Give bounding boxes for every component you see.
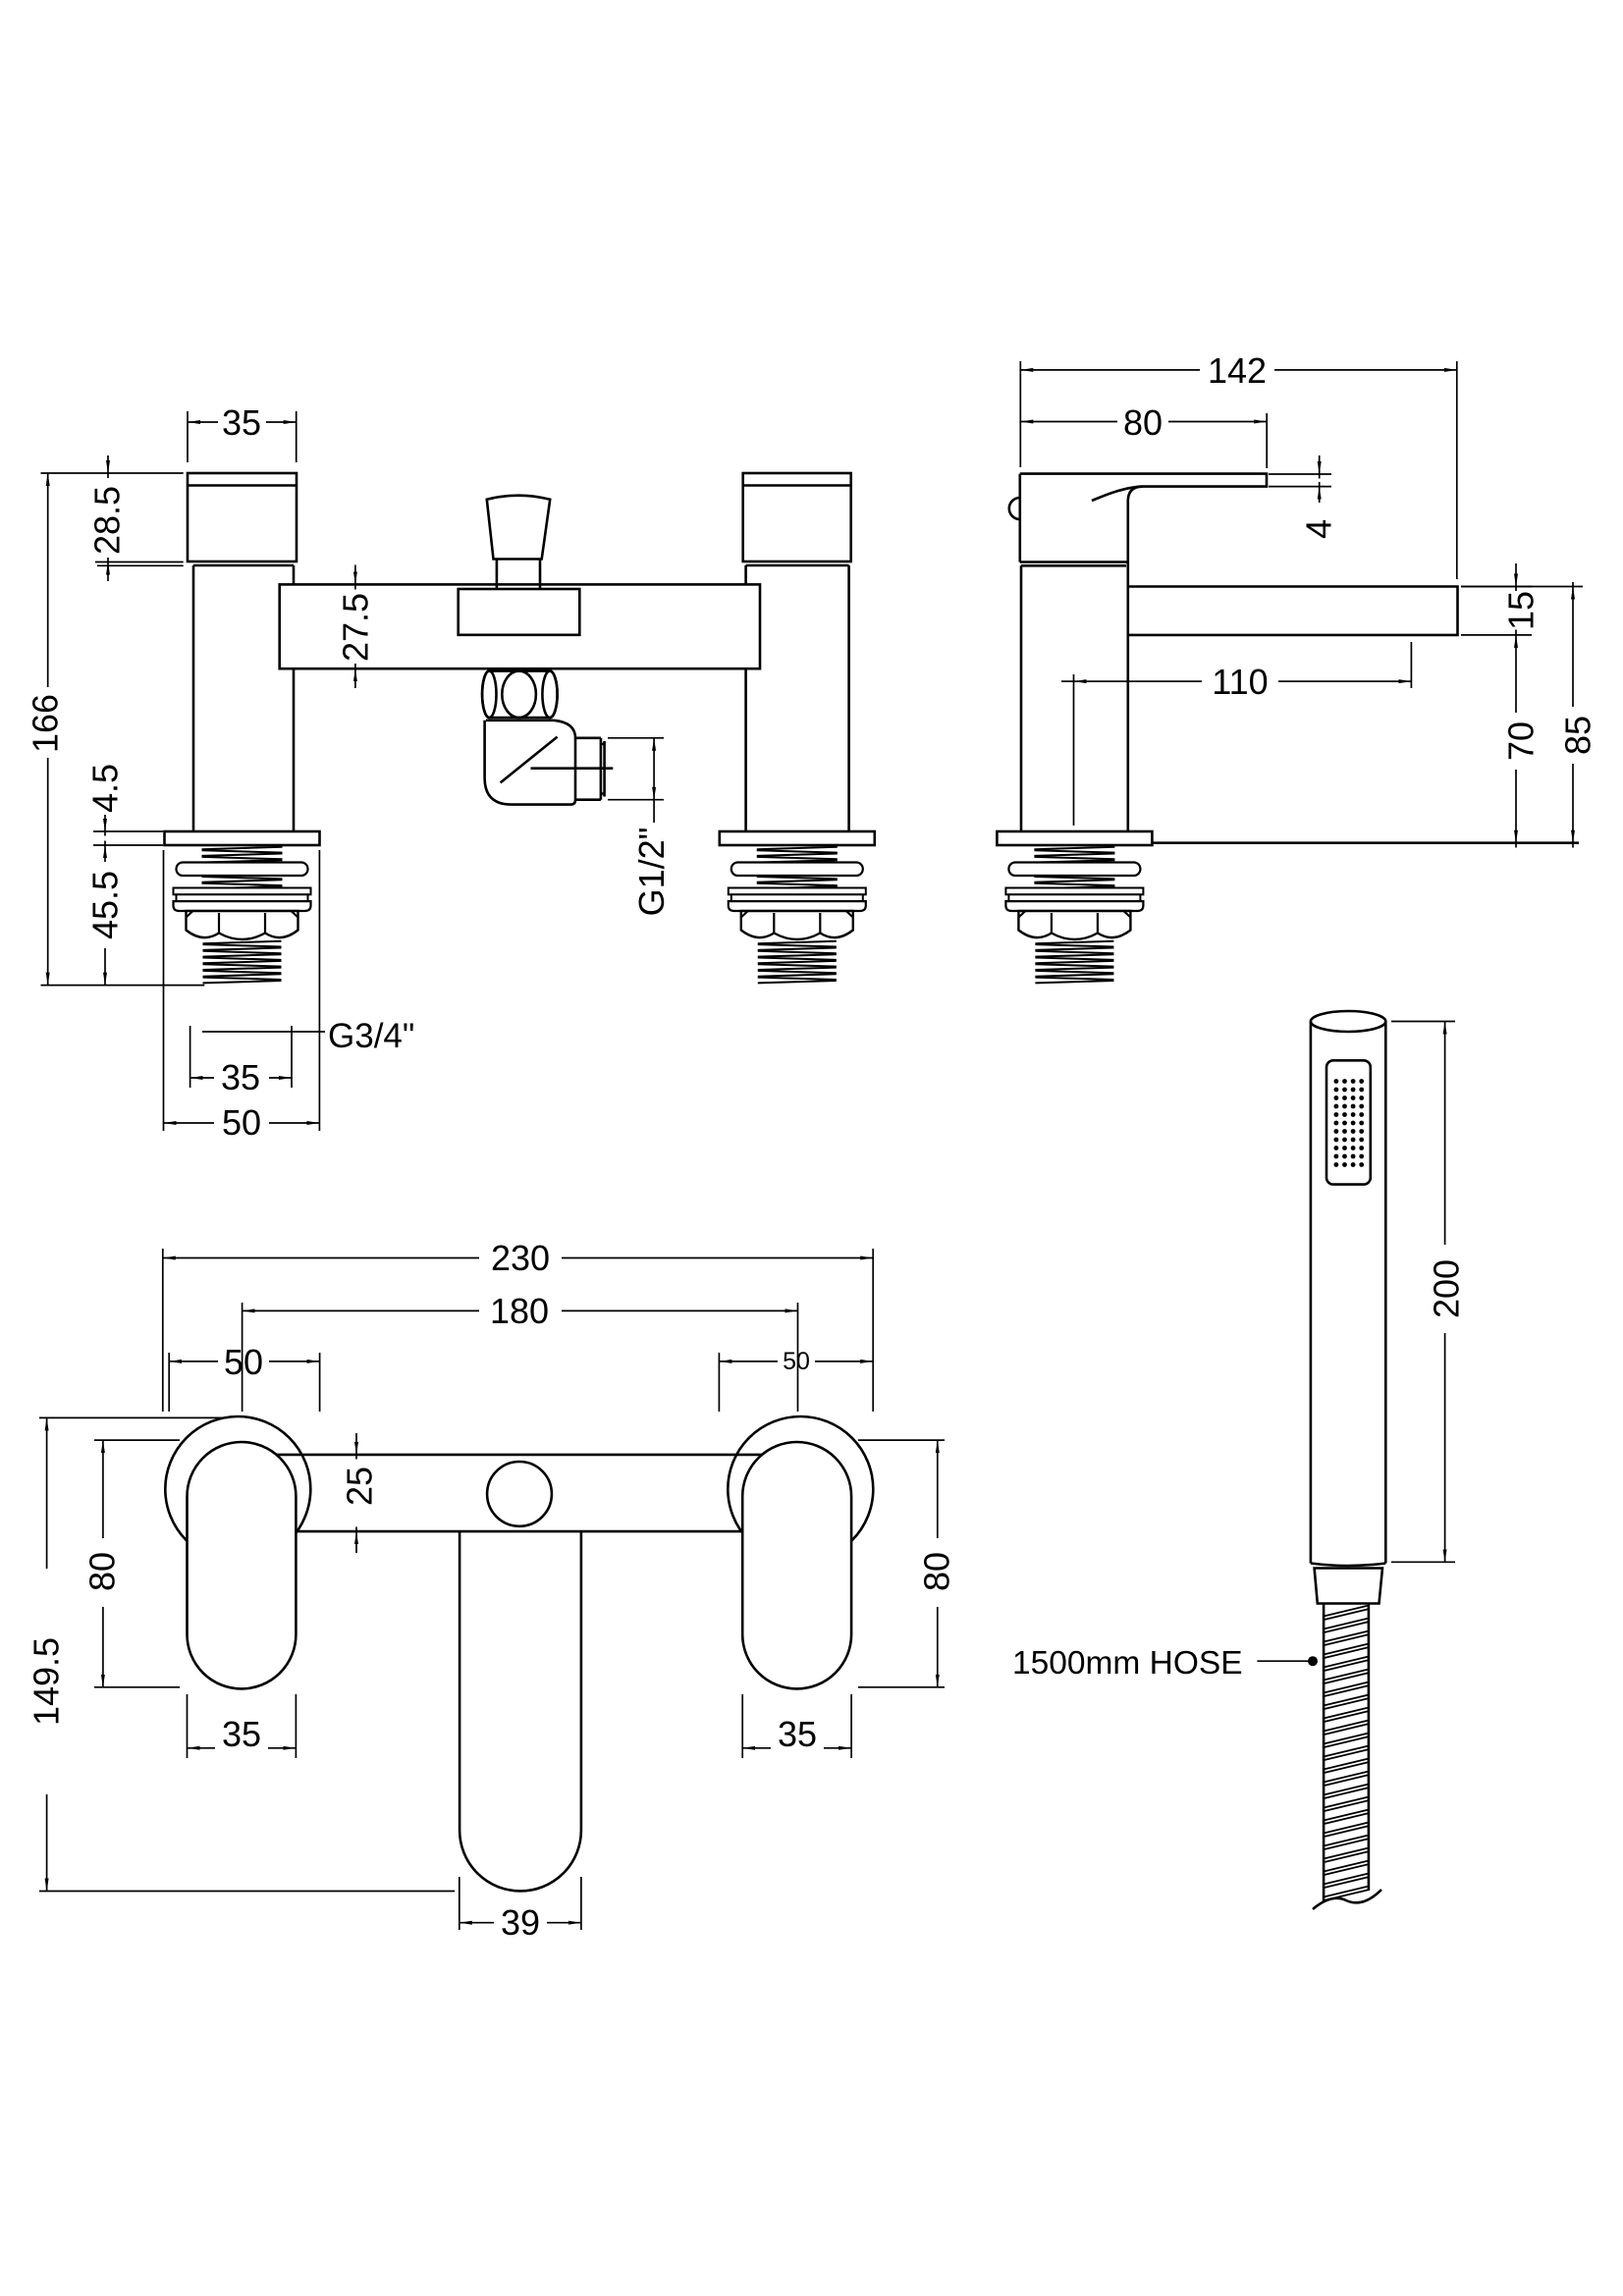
svg-text:25: 25 (340, 1467, 380, 1506)
svg-text:50: 50 (224, 1342, 263, 1382)
svg-text:166: 166 (26, 694, 66, 753)
svg-text:50: 50 (783, 1348, 810, 1375)
svg-text:G3/4": G3/4" (328, 1017, 414, 1055)
svg-text:80: 80 (917, 1552, 957, 1591)
svg-text:142: 142 (1208, 350, 1267, 391)
svg-text:230: 230 (491, 1238, 550, 1278)
svg-text:85: 85 (1558, 716, 1598, 755)
svg-text:70: 70 (1501, 721, 1542, 761)
svg-text:39: 39 (501, 1902, 540, 1943)
svg-text:80: 80 (82, 1552, 123, 1591)
svg-text:G1/2": G1/2" (631, 828, 672, 917)
svg-text:4: 4 (1299, 519, 1339, 539)
svg-text:1500mm HOSE: 1500mm HOSE (1012, 1645, 1243, 1682)
svg-text:80: 80 (1123, 402, 1163, 443)
svg-text:4.5: 4.5 (85, 764, 126, 813)
svg-text:149.5: 149.5 (27, 1637, 67, 1726)
svg-text:15: 15 (1501, 591, 1542, 630)
svg-text:28.5: 28.5 (87, 486, 128, 555)
svg-text:200: 200 (1427, 1259, 1467, 1318)
svg-text:35: 35 (222, 1714, 261, 1754)
svg-text:50: 50 (222, 1102, 261, 1143)
svg-text:110: 110 (1212, 662, 1268, 702)
svg-text:35: 35 (222, 402, 261, 443)
svg-text:27.5: 27.5 (336, 593, 376, 662)
svg-text:45.5: 45.5 (85, 871, 126, 939)
svg-text:180: 180 (490, 1291, 549, 1331)
svg-text:35: 35 (778, 1714, 817, 1754)
svg-text:35: 35 (221, 1057, 260, 1097)
